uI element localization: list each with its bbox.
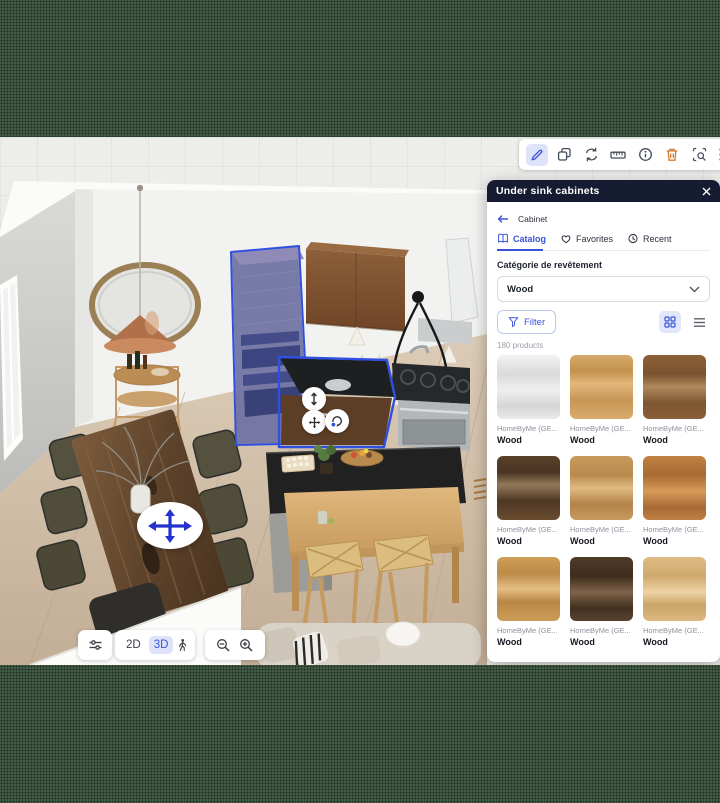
range-cooker[interactable] <box>392 363 470 451</box>
product-name: Wood <box>570 637 633 647</box>
heart-icon <box>560 233 572 244</box>
tune-sliders-icon <box>88 638 103 652</box>
trash-icon <box>665 147 679 162</box>
product-brand: HomeByMe (GE... <box>643 424 706 433</box>
sink-cabinet-selected[interactable] <box>279 357 395 447</box>
mode-3d-button[interactable]: 3D <box>149 636 174 654</box>
product-brand: HomeByMe (GE... <box>643 525 706 534</box>
rotate-object-button[interactable] <box>325 409 349 433</box>
zoom-out-button[interactable] <box>216 638 231 653</box>
sofa[interactable] <box>255 622 481 665</box>
tab-recent[interactable]: Recent <box>627 233 672 244</box>
walk-mode-button[interactable] <box>177 637 188 653</box>
funnel-icon <box>508 316 519 328</box>
ottoman <box>386 622 420 646</box>
tab-favorites[interactable]: Favorites <box>560 233 613 244</box>
zoom-in-button[interactable] <box>239 638 254 653</box>
list-view-button[interactable] <box>688 311 710 333</box>
delete-button[interactable] <box>661 144 683 166</box>
pencil-icon <box>530 148 544 162</box>
product-swatch <box>570 355 633 419</box>
move-object-gizmo[interactable] <box>137 502 203 549</box>
product-swatch <box>497 355 560 419</box>
category-select[interactable]: Wood <box>497 276 710 302</box>
back-arrow-icon <box>497 214 509 224</box>
breadcrumb-back[interactable]: Cabinet <box>497 212 710 226</box>
view-settings-button[interactable] <box>78 630 112 660</box>
product-brand: HomeByMe (GE... <box>497 525 560 534</box>
close-icon[interactable] <box>702 187 711 196</box>
grid-view-icon <box>664 316 676 328</box>
book-icon <box>497 233 509 244</box>
product-name: Wood <box>643 637 706 647</box>
product-brand: HomeByMe (GE... <box>570 525 633 534</box>
rotate-icon <box>330 414 344 428</box>
product-name: Wood <box>497 435 560 445</box>
catalog-panel: Under sink cabinets Cabinet <box>487 180 720 662</box>
product-brand: HomeByMe (GE... <box>643 626 706 635</box>
product-card[interactable]: HomeByMe (GE... Wood <box>497 557 560 647</box>
product-brand: HomeByMe (GE... <box>570 424 633 433</box>
planner-app: 2D 3D <box>0 137 720 665</box>
view-mode-switcher: 2D 3D <box>115 630 195 660</box>
category-label: Catégorie de revêtement <box>497 260 710 270</box>
product-card[interactable]: HomeByMe (GE... Wood <box>497 456 560 546</box>
grid-view-button[interactable] <box>659 311 681 333</box>
tab-favorites-label: Favorites <box>576 234 613 244</box>
product-card[interactable]: HomeByMe (GE... Wood <box>643 456 706 546</box>
glass-cup <box>318 511 327 524</box>
zoom-controls <box>205 630 265 660</box>
ruler-icon <box>610 148 626 162</box>
product-swatch <box>570 557 633 621</box>
info-button[interactable] <box>634 144 656 166</box>
product-grid: HomeByMe (GE... Wood HomeByMe (GE... Woo… <box>497 355 710 647</box>
filter-button[interactable]: Filter <box>497 310 556 334</box>
elevate-object-button[interactable] <box>302 387 326 411</box>
letterbox-bottom <box>0 665 720 803</box>
product-name: Wood <box>497 536 560 546</box>
product-card[interactable]: HomeByMe (GE... Wood <box>497 355 560 445</box>
product-swatch <box>497 456 560 520</box>
zone-select-icon <box>692 147 707 162</box>
product-name: Wood <box>643 536 706 546</box>
chevron-down-icon <box>689 286 700 293</box>
product-swatch <box>643 355 706 419</box>
product-swatch <box>570 456 633 520</box>
filter-row: Filter <box>497 310 710 334</box>
info-icon <box>638 147 653 162</box>
filter-button-label: Filter <box>524 317 545 328</box>
product-card[interactable]: HomeByMe (GE... Wood <box>643 355 706 445</box>
object-toolbar <box>519 139 720 170</box>
product-name: Wood <box>570 435 633 445</box>
measure-button[interactable] <box>607 144 629 166</box>
zone-select-button[interactable] <box>688 144 710 166</box>
product-brand: HomeByMe (GE... <box>497 626 560 635</box>
screenshot-stage: 2D 3D <box>0 0 720 803</box>
product-swatch <box>643 456 706 520</box>
panel-title: Under sink cabinets <box>496 185 600 197</box>
move-cross-icon <box>308 416 321 429</box>
panel-header: Under sink cabinets <box>487 180 720 202</box>
catalog-tabs: Catalog Favorites Recent <box>497 233 710 251</box>
duplicate-icon <box>557 147 572 162</box>
active-tab-underline <box>497 249 543 251</box>
wall-cabinet[interactable] <box>306 242 409 331</box>
panel-body: Cabinet Catalog Favorites <box>487 202 720 647</box>
mode-2d-button[interactable]: 2D <box>122 637 145 653</box>
products-count: 180 products <box>497 341 710 350</box>
drag-object-button[interactable] <box>302 410 326 434</box>
up-down-arrow-icon <box>309 392 319 406</box>
category-select-value: Wood <box>507 284 533 295</box>
product-name: Wood <box>570 536 633 546</box>
product-name: Wood <box>643 435 706 445</box>
product-card[interactable]: HomeByMe (GE... Wood <box>570 355 633 445</box>
product-card[interactable]: HomeByMe (GE... Wood <box>570 557 633 647</box>
product-swatch <box>497 557 560 621</box>
product-brand: HomeByMe (GE... <box>570 626 633 635</box>
product-swatch <box>643 557 706 621</box>
replace-button[interactable] <box>580 144 602 166</box>
list-view-icon <box>693 317 706 328</box>
duplicate-button[interactable] <box>553 144 575 166</box>
tab-catalog-label: Catalog <box>513 234 546 244</box>
product-brand: HomeByMe (GE... <box>497 424 560 433</box>
back-label: Cabinet <box>518 214 547 224</box>
product-card[interactable]: HomeByMe (GE... Wood <box>570 456 633 546</box>
clock-icon <box>627 233 639 244</box>
edit-pencil-button[interactable] <box>526 144 548 166</box>
product-view-toggles <box>659 311 710 333</box>
product-card[interactable]: HomeByMe (GE... Wood <box>643 557 706 647</box>
tab-recent-label: Recent <box>643 234 672 244</box>
letterbox-top <box>0 0 720 137</box>
move-arrows-icon <box>146 509 194 543</box>
swap-arrows-icon <box>584 147 599 162</box>
product-name: Wood <box>497 637 560 647</box>
tab-catalog[interactable]: Catalog <box>497 233 546 244</box>
